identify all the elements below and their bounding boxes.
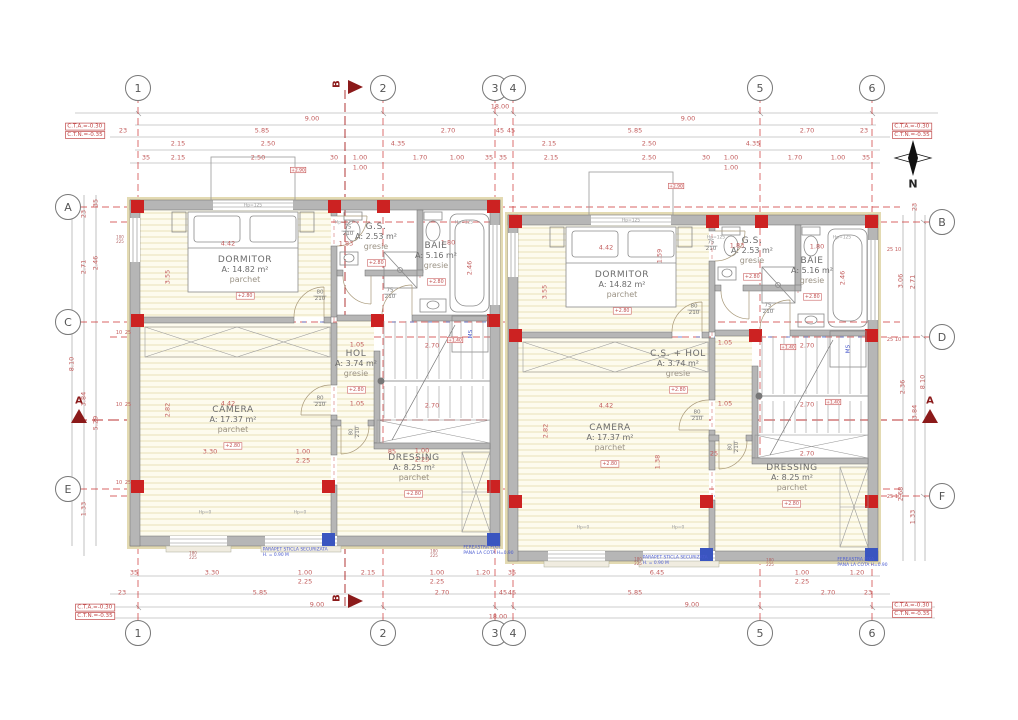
terrain-level-note: C.T.A.=-0.30C.T.N.=-0.35 (75, 604, 115, 621)
grid-bubble-6: 6 (859, 75, 885, 101)
dimension-label: 1.00 (353, 154, 367, 161)
door-size-label: 80210 (687, 304, 700, 317)
room-area: A: 17.37 m² (209, 415, 256, 424)
dimension-label: 3.55 (541, 285, 548, 299)
elevation-box: +2.90 (668, 183, 684, 189)
dimension-label: 2.70 (435, 589, 449, 596)
dimension-label: 1.00 (298, 569, 312, 576)
window-size-label: 180225 (189, 552, 197, 561)
dimension-label: 3.84 (911, 405, 918, 419)
grid-bubble-F: F (929, 483, 955, 509)
door-size-label: 80210 (313, 396, 326, 409)
dimension-label: 2.50 (261, 140, 275, 147)
dimension-label: 10 (116, 480, 122, 486)
room-floor-finish: gresie (335, 369, 377, 378)
room-area: A: 14.82 m² (218, 265, 272, 274)
room-floor-finish: parchet (766, 483, 817, 492)
room-name: DRESSING (766, 463, 817, 473)
window-parapet-label: Hp=125 (622, 218, 640, 223)
room-label: BAIEA: 5.16 m²gresie+2.80 (791, 256, 833, 303)
door-size-label: 75210 (761, 303, 774, 316)
dimension-label: 35 (142, 154, 150, 161)
dimension-label: 1.05 (718, 400, 732, 407)
room-area: A: 3.74 m² (335, 359, 377, 368)
dimension-label: 1.00 (296, 448, 310, 455)
dimension-label: 25 (710, 450, 718, 457)
window-size-label: 100225 (116, 236, 124, 245)
grid-bubble-E: E (55, 476, 81, 502)
dimension-label: 25 (887, 494, 893, 500)
grid-bubble-4: 4 (500, 75, 526, 101)
dimension-label: 9.00 (310, 601, 324, 608)
elevation-box: +2.90 (290, 167, 306, 173)
dimension-label: 35 (485, 154, 493, 161)
dimension-label: 1.05 (718, 339, 732, 346)
elevation-box: +1.40 (825, 399, 841, 405)
room-elevation: +2.80 (367, 259, 385, 266)
room-floor-finish: parchet (595, 290, 649, 299)
dimension-label: 8.10 (919, 375, 926, 389)
washing-machine-label: MS (467, 330, 473, 338)
dimension-label: 1.00 (795, 569, 809, 576)
room-label: C.S. + HOLA: 3.74 m²gresie+2.80 (650, 349, 706, 396)
door-height: 210 (383, 294, 396, 300)
room-name: CAMERA (586, 423, 633, 433)
dimension-label: 1.00 (831, 154, 845, 161)
dimension-label: 2.25 (298, 578, 312, 585)
door-height: 210 (355, 425, 361, 438)
dimension-label: 5.85 (255, 127, 269, 134)
dimension-label: 3.55 (164, 270, 171, 284)
dimension-label: 2.70 (821, 589, 835, 596)
dimension-label: 2.15 (171, 154, 185, 161)
door-height: 210 (734, 440, 740, 453)
dimension-label: 25 (125, 480, 131, 486)
room-name: DORMITOR (595, 270, 649, 280)
room-elevation: +2.80 (613, 307, 631, 314)
dimension-label: 1.00 (430, 569, 444, 576)
door-size-label: 75210 (383, 288, 396, 301)
dimension-label: 23 (119, 127, 127, 134)
dimension-label: 2.36 (899, 380, 906, 394)
grid-bubble-1: 1 (125, 620, 151, 646)
dimension-label: 2.25 (795, 578, 809, 585)
room-elevation: +2.80 (669, 386, 687, 393)
grid-bubble-2: 2 (370, 75, 396, 101)
room-elevation: +2.80 (743, 273, 761, 280)
dimension-label: 4.42 (599, 402, 613, 409)
dimension-label: 2.15 (171, 140, 185, 147)
section-letter: B (332, 80, 343, 88)
room-area: A: 3.74 m² (650, 359, 706, 368)
room-label: CAMERAA: 17.37 m²parchet+2.80 (586, 423, 633, 470)
dimension-label: 45 (507, 127, 515, 134)
room-floor-finish: gresie (355, 242, 397, 251)
dimension-label: 2.70 (800, 127, 814, 134)
room-label: HOLA: 3.74 m²gresie+2.80 (335, 349, 377, 396)
north-label: N (908, 178, 917, 191)
door-height: 210 (313, 402, 326, 408)
dimension-label: 2.70 (441, 127, 455, 134)
grid-bubble-C: C (55, 309, 81, 335)
dimension-label: 9.00 (681, 115, 695, 122)
dimension-label: 2.71 (80, 260, 87, 274)
construction-note: FEREASTRA FIXAPANA LA COTA H=0.90 (837, 557, 887, 568)
room-name: G.S. (355, 222, 397, 232)
dimension-label: 10 (895, 247, 901, 253)
window-parapet-label: Hp=0 (577, 525, 590, 530)
dimension-label: 45 (508, 589, 516, 596)
dimension-label: 2.82 (542, 424, 549, 438)
window-parapet-label: Hp=125 (244, 203, 262, 208)
window-parapet-label: Hp=0 (199, 510, 212, 515)
construction-note: PARAPET STICLA SECURIZATAH. = 0.90 M (643, 555, 708, 566)
construction-note: PARAPET STICLA SECURIZATAH. = 0.90 M (263, 547, 328, 558)
window-parapet-label: Hp=125 (455, 220, 473, 225)
room-name: G.S. (731, 236, 773, 246)
dimension-label: 2.25 (296, 457, 310, 464)
room-area: A: 5.16 m² (791, 266, 833, 275)
door-height: 210 (761, 309, 774, 315)
window-parapet-label: Hp=0 (672, 525, 685, 530)
floor-plan-canvas: 112233445566ACEBDF18.009.009.00235.852.7… (0, 0, 1018, 720)
dimension-label: 6.45 (650, 569, 664, 576)
window-parapet-label: Hp=125 (707, 235, 725, 240)
door-size-label: 80210 (728, 440, 741, 453)
section-letter: A (75, 396, 83, 407)
dimension-label: 35 (92, 199, 99, 207)
room-name: CAMERA (209, 405, 256, 415)
grid-bubble-D: D (929, 324, 955, 350)
room-label: G.S.A: 2.53 m²gresie+2.80 (355, 222, 397, 269)
dimension-label: 35 (130, 569, 138, 576)
room-elevation: +2.80 (783, 500, 801, 507)
dimension-label: 2.50 (642, 154, 656, 161)
dimension-label: 1.70 (788, 154, 802, 161)
window-size-label: 180225 (430, 550, 438, 559)
dimension-label: 2.46 (466, 261, 473, 275)
door-size-label: 80210 (349, 425, 362, 438)
dimension-label: 3.30 (205, 569, 219, 576)
dimension-label: 1.20 (850, 569, 864, 576)
section-letter: B (332, 594, 343, 602)
room-elevation: +2.80 (236, 292, 254, 299)
terrain-level-note: C.T.A.=-0.30C.T.N.=-0.35 (65, 123, 105, 140)
dimension-label: 2.25 (430, 578, 444, 585)
dimension-label: 2.50 (251, 154, 265, 161)
dimension-label: 2.50 (642, 140, 656, 147)
door-size-label: 80210 (313, 290, 326, 303)
dimension-label: 2.71 (909, 275, 916, 289)
room-label: DRESSINGA: 8.25 m²parchet+2.80 (388, 453, 439, 500)
grid-bubble-5: 5 (747, 620, 773, 646)
door-height: 210 (687, 310, 700, 316)
dimension-label: 9.00 (305, 115, 319, 122)
dimension-label: 23 (911, 203, 918, 211)
room-label: CAMERAA: 17.37 m²parchet+2.80 (209, 405, 256, 452)
door-height: 210 (704, 246, 717, 252)
room-area: A: 14.82 m² (595, 280, 649, 289)
dimension-label: 25 (887, 247, 893, 253)
window-parapet-label: Hp=125 (833, 235, 851, 240)
dimension-label: 2.70 (800, 401, 814, 408)
dimension-label: 25 (887, 337, 893, 343)
room-area: A: 5.16 m² (415, 251, 457, 260)
dimension-label: 2.46 (92, 256, 99, 270)
elevation-box: +1.40 (447, 337, 463, 343)
room-area: A: 2.53 m² (731, 246, 773, 255)
room-floor-finish: parchet (586, 443, 633, 452)
room-elevation: +2.80 (405, 490, 423, 497)
terrain-level-note: C.T.A.=-0.30C.T.N.=-0.35 (892, 602, 932, 619)
construction-note: FEREASTRA FIXAPANA LA COTA H=0.90 (463, 545, 513, 556)
dimension-label: 4.42 (221, 240, 235, 247)
section-letter: A (926, 396, 934, 407)
room-area: A: 17.37 m² (586, 433, 633, 442)
dimension-label: 30 (330, 154, 338, 161)
washing-machine-label: MS (845, 345, 851, 353)
grid-bubble-A: A (55, 194, 81, 220)
dimension-label: 1.00 (353, 164, 367, 171)
room-floor-finish: parchet (388, 473, 439, 482)
dimension-label: 45 (499, 589, 507, 596)
dimension-label: 4.42 (599, 244, 613, 251)
annotation-overlay: 112233445566ACEBDF18.009.009.00235.852.7… (0, 0, 1018, 720)
dimension-label: 1.00 (724, 154, 738, 161)
grid-bubble-6: 6 (859, 620, 885, 646)
room-floor-finish: gresie (415, 261, 457, 270)
dimension-label: 10 (895, 494, 901, 500)
window-size-label: 180225 (634, 558, 642, 567)
room-name: HOL (335, 349, 377, 359)
room-name: DRESSING (388, 453, 439, 463)
dimension-label: 8.10 (68, 357, 75, 371)
dimension-label: 3.06 (897, 274, 904, 288)
dimension-label: 5.85 (628, 589, 642, 596)
dimension-label: 23 (80, 210, 87, 218)
dimension-label: 10 (895, 337, 901, 343)
dimension-label: 4.35 (391, 140, 405, 147)
grid-bubble-2: 2 (370, 620, 396, 646)
room-name: BAIE (791, 256, 833, 266)
window-size-label: 180225 (766, 559, 774, 568)
dimension-label: 25 (125, 402, 131, 408)
door-size-label: 75210 (704, 240, 717, 253)
room-label: BAIEA: 5.16 m²gresie+2.80 (415, 241, 457, 288)
dimension-label: 1.33 (909, 510, 916, 524)
dimension-label: 1.80 (810, 243, 824, 250)
room-area: A: 8.25 m² (766, 473, 817, 482)
dimension-label: 23 (118, 589, 126, 596)
elevation-box: +1.40 (780, 344, 796, 350)
dimension-label: 25 (125, 330, 131, 336)
door-size-label: 75210 (341, 225, 354, 238)
dimension-label: 18.00 (489, 613, 508, 620)
dimension-label: 2.15 (544, 154, 558, 161)
dimension-label: 5.85 (628, 127, 642, 134)
window-parapet-label: Hp=0 (294, 510, 307, 515)
door-size-label: 80210 (690, 410, 703, 423)
dimension-label: 1.33 (80, 502, 87, 516)
room-floor-finish: parchet (209, 425, 256, 434)
room-name: C.S. + HOL (650, 349, 706, 359)
dimension-label: 1.83 (339, 240, 353, 247)
room-label: DRESSINGA: 8.25 m²parchet+2.80 (766, 463, 817, 510)
room-name: DORMITOR (218, 255, 272, 265)
window-parapet-label: Hp=125 (335, 220, 353, 225)
terrain-level-note: C.T.A.=-0.30C.T.N.=-0.35 (892, 123, 932, 140)
room-floor-finish: gresie (650, 369, 706, 378)
room-elevation: +2.80 (347, 386, 365, 393)
door-height: 210 (690, 416, 703, 422)
room-elevation: +2.80 (224, 442, 242, 449)
dimension-label: 1.20 (476, 569, 490, 576)
room-label: DORMITORA: 14.82 m²parchet+2.80 (595, 270, 649, 317)
dimension-label: 2.15 (542, 140, 556, 147)
room-area: A: 8.25 m² (388, 463, 439, 472)
room-label: DORMITORA: 14.82 m²parchet+2.80 (218, 255, 272, 302)
dimension-label: 35 (508, 569, 516, 576)
dimension-label: 2.70 (425, 402, 439, 409)
dimension-label: 18.00 (491, 103, 510, 110)
door-height: 210 (313, 296, 326, 302)
dimension-label: 5.29 (92, 416, 99, 430)
dimension-label: 1.05 (350, 341, 364, 348)
dimension-label: 23 (864, 589, 872, 596)
dimension-label: 23 (860, 127, 868, 134)
dimension-label: 1.70 (413, 154, 427, 161)
grid-bubble-4: 4 (500, 620, 526, 646)
dimension-label: 30 (702, 154, 710, 161)
room-floor-finish: gresie (791, 276, 833, 285)
door-height: 210 (341, 231, 354, 237)
dimension-label: 2.70 (425, 342, 439, 349)
dimension-label: 1.00 (450, 154, 464, 161)
dimension-label: 2.70 (800, 450, 814, 457)
dimension-label: 1.05 (350, 400, 364, 407)
room-floor-finish: parchet (218, 275, 272, 284)
dimension-label: 35 (862, 154, 870, 161)
dimension-label: 2.82 (164, 403, 171, 417)
grid-bubble-5: 5 (747, 75, 773, 101)
dimension-label: 10 (116, 402, 122, 408)
dimension-label: 5.85 (253, 589, 267, 596)
room-elevation: +2.80 (803, 293, 821, 300)
dimension-label: 4.35 (746, 140, 760, 147)
dimension-label: 1.59 (656, 249, 663, 263)
dimension-label: 45 (496, 127, 504, 134)
room-name: BAIE (415, 241, 457, 251)
grid-bubble-B: B (929, 209, 955, 235)
dimension-label: 2.70 (800, 342, 814, 349)
grid-bubble-1: 1 (125, 75, 151, 101)
room-label: G.S.A: 2.53 m²gresie+2.80 (731, 236, 773, 283)
dimension-label: 1.38 (654, 455, 661, 469)
room-area: A: 2.53 m² (355, 232, 397, 241)
dimension-label: 9.00 (685, 601, 699, 608)
dimension-label: 1.00 (724, 164, 738, 171)
room-elevation: +2.80 (601, 460, 619, 467)
dimension-label: 2.15 (361, 569, 375, 576)
dimension-label: 2.46 (839, 271, 846, 285)
dimension-label: 35 (499, 154, 507, 161)
dimension-label: 10 (116, 330, 122, 336)
room-floor-finish: gresie (731, 256, 773, 265)
room-elevation: +2.80 (427, 278, 445, 285)
